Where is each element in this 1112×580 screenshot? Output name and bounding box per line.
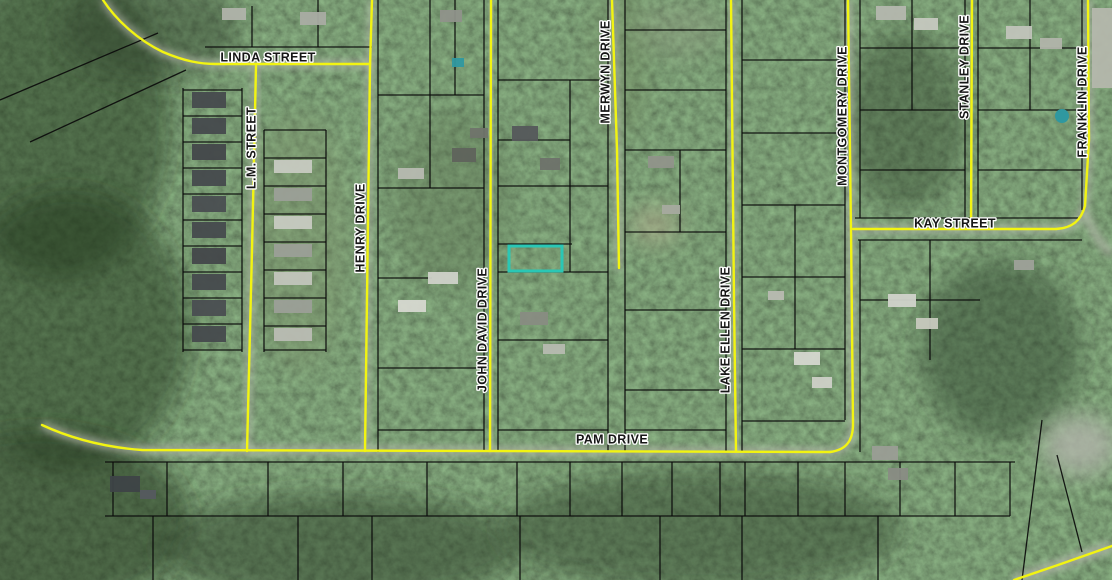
street-label-merwyn-drive: MERWYN DRIVE [598, 20, 612, 123]
building-footprint [452, 148, 476, 162]
building-footprint [274, 244, 312, 257]
street-label-linda-street: LINDA STREET [220, 50, 315, 64]
street-label-montgomery-drive: MONTGOMERY DRIVE [835, 46, 849, 186]
building-footprint [768, 291, 784, 300]
building-footprint [440, 10, 462, 22]
building-footprint [274, 300, 312, 313]
building-footprint [192, 222, 226, 238]
pool [1055, 109, 1069, 123]
building-footprint [140, 490, 156, 499]
building-footprint [110, 476, 140, 492]
building-footprint [192, 300, 226, 316]
street-label-henry-drive: HENRY DRIVE [353, 183, 367, 272]
building-footprint [1040, 38, 1062, 49]
building-footprint [1014, 260, 1034, 270]
john-david-drive-highlight [490, 0, 491, 451]
building-footprint [512, 126, 538, 141]
building-footprint [520, 312, 548, 325]
map-canvas[interactable]: LINDA STREETL.M. STREETHENRY DRIVEJOHN D… [0, 0, 1112, 580]
building-footprint [192, 248, 226, 264]
building-footprint [192, 118, 226, 134]
building-footprint [274, 272, 312, 285]
building-footprint [398, 168, 424, 179]
building-footprint [876, 6, 906, 20]
building-footprint [192, 196, 226, 212]
building-footprint [470, 128, 488, 138]
building-footprint [192, 92, 226, 108]
street-label-lake-ellen-drive: LAKE ELLEN DRIVE [718, 267, 732, 394]
street-label-pam-drive: PAM DRIVE [576, 432, 648, 446]
building-footprint [274, 160, 312, 173]
building-footprint [192, 170, 226, 186]
street-label-franklin-drive: FRANKLIN DRIVE [1075, 46, 1089, 157]
building-footprint [662, 205, 680, 214]
building-footprint [300, 12, 326, 25]
building-footprint [648, 156, 674, 168]
building-footprint [543, 344, 565, 354]
building-footprint [398, 300, 426, 312]
building-footprint [540, 158, 560, 170]
building-footprint [1092, 8, 1112, 88]
building-footprint [812, 377, 832, 388]
building-footprint [794, 352, 820, 365]
building-footprint [1006, 26, 1032, 39]
building-footprint [274, 216, 312, 229]
building-footprint [872, 446, 898, 460]
building-footprint [452, 58, 464, 67]
street-label-l-m-street: L.M. STREET [244, 107, 258, 189]
building-footprint [192, 326, 226, 342]
building-footprint [192, 144, 226, 160]
building-footprint [916, 318, 938, 329]
parcel-map-svg: LINDA STREETL.M. STREETHENRY DRIVEJOHN D… [0, 0, 1112, 580]
building-footprint [888, 468, 908, 480]
terrain-patch [845, 30, 965, 210]
street-label-kay-street: KAY STREET [914, 216, 996, 230]
street-label-stanley-drive: STANLEY DRIVE [957, 15, 971, 119]
terrain-patch [920, 260, 1080, 440]
building-footprint [192, 274, 226, 290]
building-footprint [914, 18, 938, 30]
building-footprint [274, 188, 312, 201]
building-footprint [428, 272, 458, 284]
building-footprint [222, 8, 246, 20]
street-label-john-david-drive: JOHN DAVID DRIVE [475, 268, 489, 392]
building-footprint [888, 294, 916, 307]
building-footprint [274, 328, 312, 341]
